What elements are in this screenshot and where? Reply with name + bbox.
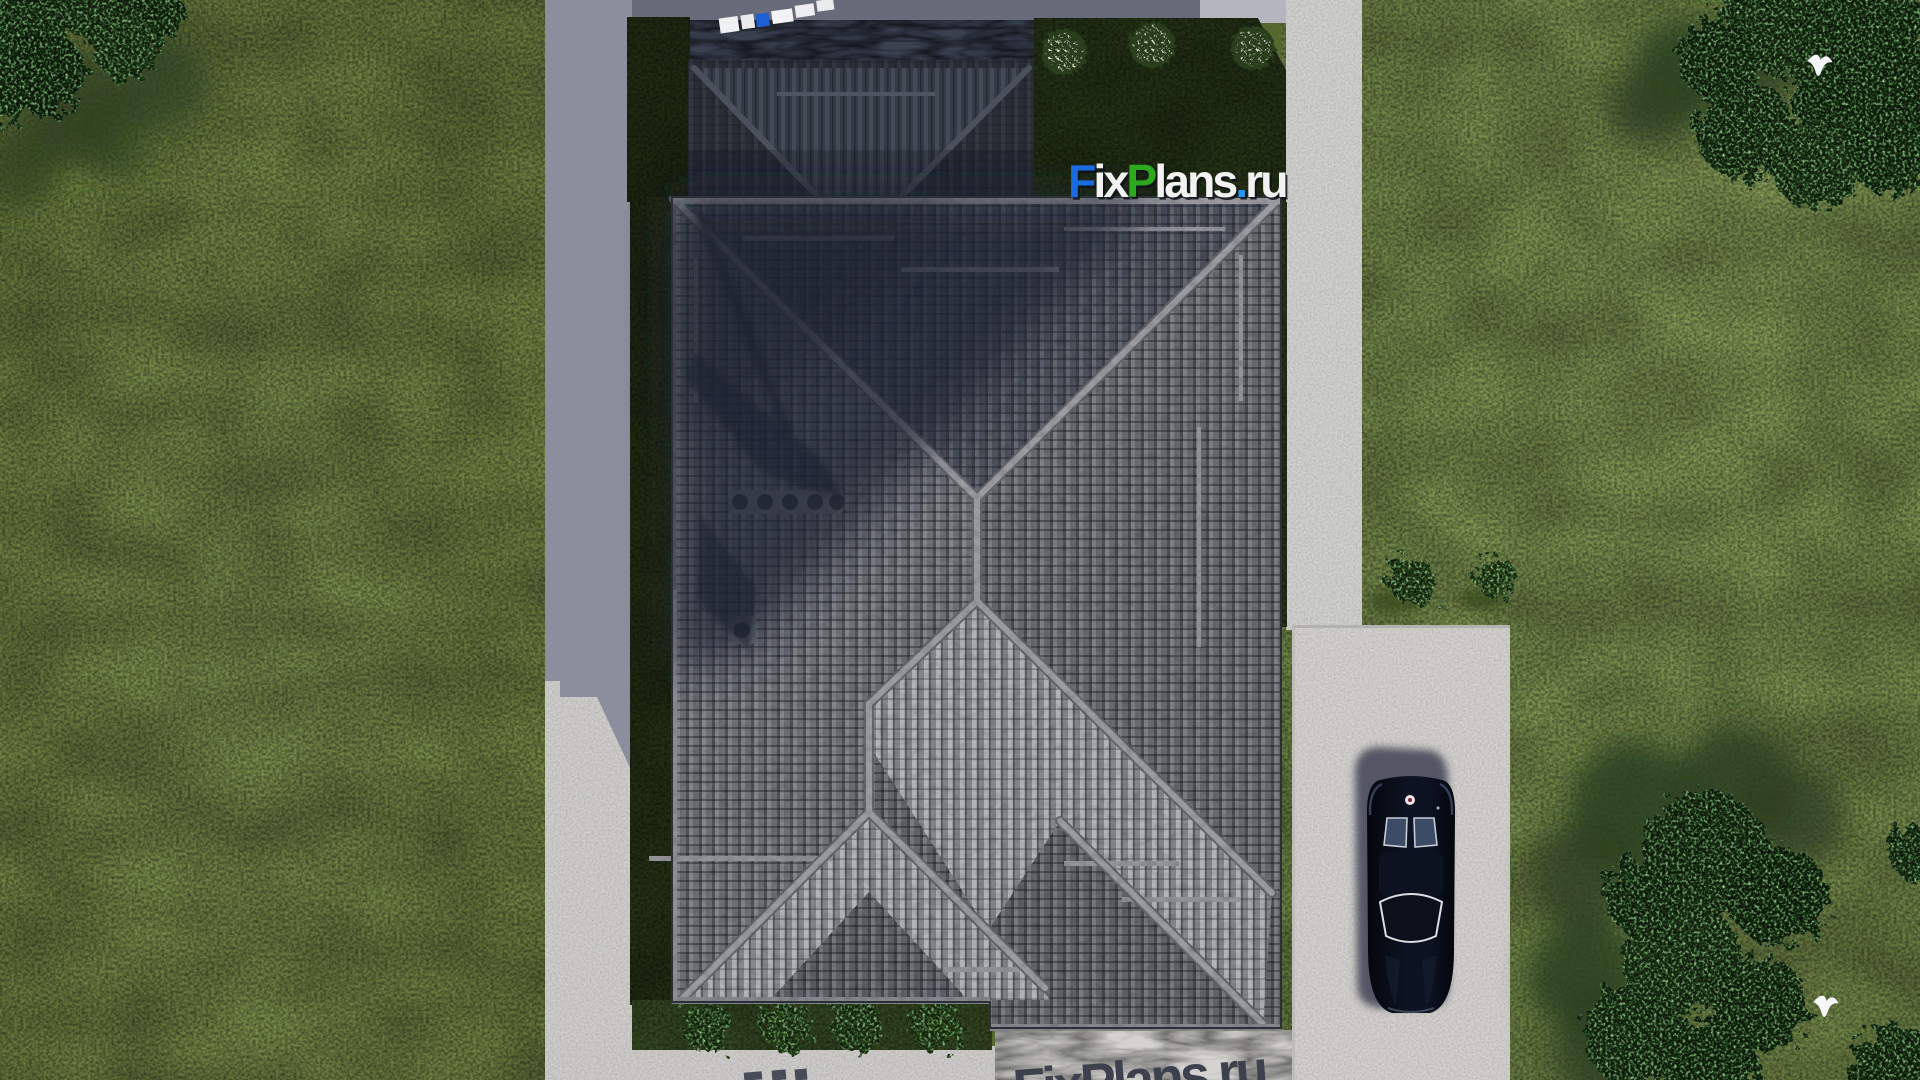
svg-text:FixPlans.ru: FixPlans.ru — [1068, 155, 1286, 207]
